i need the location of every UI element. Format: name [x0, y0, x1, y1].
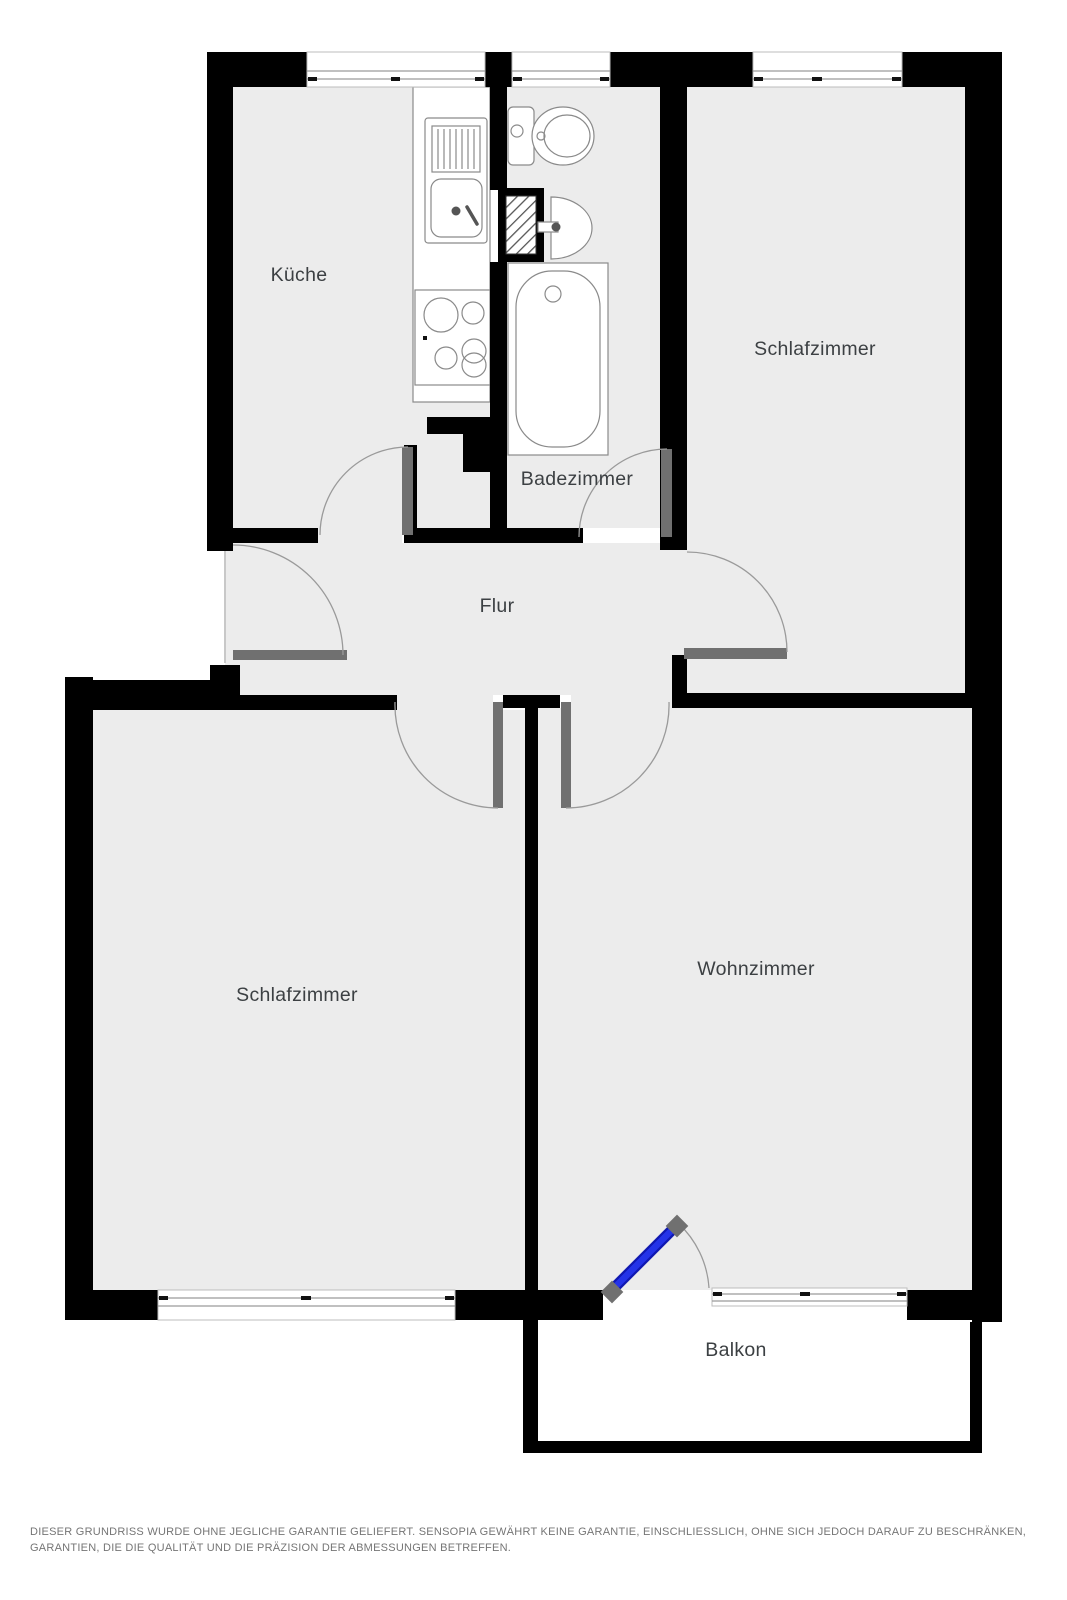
room-label-kueche: Küche [271, 264, 328, 286]
room-label-badezimmer: Badezimmer [521, 468, 634, 490]
wall-segment [525, 708, 538, 1290]
room-floor-balkon [538, 1300, 970, 1443]
wall-segment [490, 87, 507, 190]
wall-segment [240, 695, 397, 710]
wall-segment [907, 1290, 972, 1320]
room-floor-wohnzimmer [538, 708, 972, 1290]
wall-segment [210, 665, 240, 710]
wall-segment [672, 655, 687, 708]
wall-segment [485, 52, 512, 87]
balcony-wall-left [523, 1313, 538, 1453]
wall-segment [417, 528, 583, 543]
doorway-schlafzimmer-oben [672, 550, 687, 655]
floorplan-canvas: Küche Badezimmer Schlafzimmer Flur Schla… [0, 0, 1067, 1600]
kitchen-sink [425, 118, 487, 243]
window-wohnzimmer [712, 1288, 907, 1306]
doorway-wohnzimmer [571, 693, 673, 708]
window-schlafzimmer-oben [753, 52, 902, 87]
wall-segment [65, 1290, 158, 1320]
room-floor-schlafzimmer-oben [687, 87, 965, 693]
room-label-wohnzimmer: Wohnzimmer [697, 958, 815, 980]
room-label-flur: Flur [480, 595, 515, 617]
ventilation-shaft [498, 188, 544, 262]
balcony-wall-bottom [523, 1441, 982, 1453]
room-floor-flur [225, 543, 672, 695]
wall-segment [233, 528, 318, 543]
faucet-icon [452, 207, 461, 216]
wall-segment [687, 693, 1002, 708]
wall-segment [972, 708, 1002, 1322]
wall-segment [463, 432, 490, 472]
basin-faucet-icon [552, 223, 561, 232]
wall-segment [490, 262, 507, 530]
room-label-balkon: Balkon [705, 1339, 766, 1361]
window-schlafzimmer-unten [158, 1290, 455, 1320]
balcony-wall-right [970, 1322, 982, 1453]
bathtub [508, 263, 608, 455]
window-badezimmer [512, 52, 610, 87]
doorway-kueche [318, 528, 402, 543]
wall-segment [427, 417, 490, 434]
wall-segment [207, 52, 233, 551]
doorway-schlafzimmer-unten [397, 695, 493, 710]
fixtures [413, 87, 608, 455]
room-label-schlafzimmer-oben: Schlafzimmer [754, 338, 876, 360]
wall-segment [503, 695, 560, 708]
toilet [508, 107, 594, 165]
wall-segment [65, 677, 93, 1320]
stove [415, 290, 490, 385]
room-label-schlafzimmer-unten: Schlafzimmer [236, 984, 358, 1006]
wall-segment [902, 52, 1002, 87]
floorplan-drawing: Küche Badezimmer Schlafzimmer Flur Schla… [0, 0, 1067, 1600]
window-kueche [307, 52, 485, 87]
disclaimer-text: DIESER GRUNDRISS WURDE OHNE JEGLICHE GAR… [30, 1524, 1040, 1556]
wall-segment [965, 87, 1002, 693]
wall-segment [93, 680, 210, 710]
